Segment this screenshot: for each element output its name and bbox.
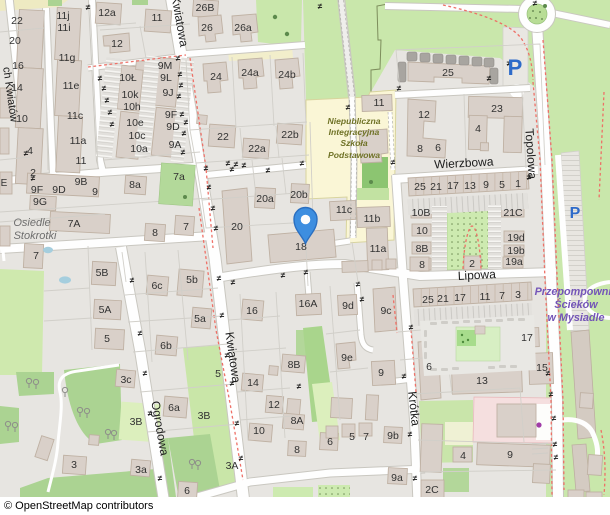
svg-text:9: 9 — [483, 179, 489, 191]
svg-text:9F: 9F — [31, 184, 43, 196]
svg-text:20b: 20b — [290, 189, 308, 201]
svg-text:6b: 6b — [160, 340, 172, 352]
svg-text:16: 16 — [12, 60, 24, 72]
svg-text:11c: 11c — [67, 110, 83, 122]
svg-text:≠: ≠ — [179, 81, 184, 90]
svg-text:10h: 10h — [123, 101, 141, 113]
svg-text:≠: ≠ — [553, 440, 558, 449]
svg-text:≠: ≠ — [226, 159, 231, 168]
svg-text:14: 14 — [11, 82, 23, 94]
svg-text:Niepubliczna: Niepubliczna — [327, 116, 380, 126]
svg-text:≠: ≠ — [391, 158, 396, 167]
svg-text:22b: 22b — [281, 129, 299, 141]
svg-text:Stokrotki: Stokrotki — [14, 230, 57, 242]
svg-text:10k: 10k — [122, 89, 140, 101]
svg-text:4: 4 — [27, 145, 33, 157]
svg-text:≠: ≠ — [143, 369, 148, 378]
svg-text:8: 8 — [294, 444, 300, 456]
svg-text:9D: 9D — [52, 184, 66, 196]
svg-text:3B: 3B — [130, 416, 143, 428]
svg-text:10e: 10e — [126, 117, 144, 129]
svg-text:7: 7 — [499, 290, 505, 302]
svg-text:Szkoła: Szkoła — [340, 138, 367, 148]
svg-text:10B: 10B — [412, 207, 431, 219]
svg-text:9: 9 — [92, 186, 98, 198]
svg-text:≠: ≠ — [549, 390, 554, 399]
svg-text:9J: 9J — [162, 87, 173, 99]
svg-text:E: E — [1, 178, 8, 189]
svg-text:10: 10 — [16, 113, 28, 125]
svg-text:20: 20 — [231, 221, 243, 233]
svg-text:≠: ≠ — [176, 54, 181, 63]
svg-text:9d: 9d — [342, 300, 354, 312]
svg-text:11e: 11e — [63, 80, 80, 92]
svg-text:9F: 9F — [165, 109, 177, 121]
svg-text:11: 11 — [76, 155, 87, 167]
svg-text:13: 13 — [464, 180, 476, 192]
svg-text:3: 3 — [71, 459, 77, 471]
svg-text:10c: 10c — [129, 130, 146, 142]
svg-text:≠: ≠ — [220, 311, 225, 320]
svg-text:17: 17 — [447, 180, 459, 192]
svg-text:10a: 10a — [130, 143, 148, 155]
svg-text:11g: 11g — [59, 52, 76, 64]
svg-text:9a: 9a — [391, 472, 403, 484]
svg-text:≠: ≠ — [181, 148, 186, 157]
svg-text:≠: ≠ — [397, 84, 402, 93]
svg-text:5: 5 — [349, 431, 355, 443]
svg-text:≠: ≠ — [178, 70, 183, 79]
svg-text:w Mysiadle: w Mysiadle — [547, 312, 604, 324]
svg-text:12a: 12a — [98, 7, 116, 19]
svg-text:≠: ≠ — [487, 74, 492, 83]
svg-text:≠: ≠ — [266, 166, 271, 175]
svg-text:≠: ≠ — [86, 3, 91, 12]
svg-text:11a: 11a — [70, 135, 87, 147]
svg-text:≠: ≠ — [242, 161, 247, 170]
svg-text:25: 25 — [422, 294, 434, 306]
svg-text:≠: ≠ — [207, 183, 212, 192]
svg-text:6c: 6c — [151, 280, 162, 292]
svg-text:6: 6 — [435, 142, 441, 154]
svg-text:9B: 9B — [75, 176, 88, 188]
svg-text:5: 5 — [215, 368, 221, 380]
svg-text:11a: 11a — [370, 243, 387, 255]
svg-text:17: 17 — [454, 292, 466, 304]
svg-text:Ścieków: Ścieków — [554, 298, 598, 311]
svg-text:7A: 7A — [68, 218, 81, 230]
svg-text:≠: ≠ — [533, 0, 538, 8]
svg-text:≠: ≠ — [182, 129, 187, 138]
svg-text:16: 16 — [246, 305, 258, 317]
svg-text:≠: ≠ — [177, 92, 182, 101]
svg-text:≠: ≠ — [214, 224, 219, 233]
svg-text:≠: ≠ — [552, 414, 557, 423]
svg-text:© OpenStreetMap contributors: © OpenStreetMap contributors — [4, 500, 154, 512]
svg-text:≠: ≠ — [281, 271, 286, 280]
svg-text:4: 4 — [460, 450, 466, 462]
svg-text:3c: 3c — [120, 374, 131, 386]
svg-text:9c: 9c — [380, 305, 391, 317]
svg-text:9L: 9L — [160, 72, 172, 84]
svg-text:7: 7 — [183, 221, 189, 233]
svg-text:3B: 3B — [198, 410, 211, 422]
svg-text:≠: ≠ — [360, 295, 365, 304]
svg-text:3: 3 — [515, 289, 521, 301]
svg-text:5b: 5b — [186, 274, 198, 286]
svg-text:7a: 7a — [173, 171, 185, 183]
svg-text:11b: 11b — [364, 213, 381, 225]
svg-text:≠: ≠ — [356, 280, 361, 289]
svg-text:21: 21 — [430, 181, 442, 193]
svg-text:5: 5 — [104, 333, 110, 345]
svg-text:5B: 5B — [96, 267, 109, 279]
svg-text:16A: 16A — [299, 298, 318, 310]
svg-text:9G: 9G — [33, 196, 47, 208]
svg-text:25: 25 — [442, 67, 454, 79]
svg-text:≠: ≠ — [408, 430, 413, 439]
svg-text:8B: 8B — [288, 359, 301, 371]
svg-text:≠: ≠ — [98, 74, 103, 83]
svg-text:≠: ≠ — [235, 419, 240, 428]
svg-text:Podstawowa: Podstawowa — [328, 150, 380, 160]
svg-text:24a: 24a — [241, 67, 259, 79]
svg-text:6: 6 — [327, 436, 333, 448]
svg-text:5: 5 — [499, 179, 505, 191]
svg-text:12: 12 — [418, 109, 430, 121]
svg-text:17: 17 — [521, 332, 533, 344]
svg-text:≠: ≠ — [217, 274, 222, 283]
svg-text:23: 23 — [491, 103, 503, 115]
svg-text:20a: 20a — [256, 193, 274, 205]
svg-text:11: 11 — [152, 12, 163, 24]
svg-text:9b: 9b — [387, 430, 399, 442]
svg-text:≠: ≠ — [413, 474, 418, 483]
svg-text:P: P — [570, 205, 581, 222]
svg-text:21C: 21C — [503, 207, 523, 219]
svg-text:13: 13 — [476, 375, 488, 387]
svg-text:19a: 19a — [505, 256, 523, 268]
svg-text:2: 2 — [469, 258, 475, 270]
svg-text:≠: ≠ — [110, 120, 115, 129]
svg-text:6: 6 — [184, 485, 190, 497]
svg-text:2C: 2C — [425, 484, 439, 496]
svg-text:5A: 5A — [99, 304, 112, 316]
svg-text:≠: ≠ — [102, 84, 107, 93]
svg-text:9M: 9M — [158, 60, 173, 72]
svg-text:22: 22 — [11, 15, 23, 27]
svg-text:≠: ≠ — [346, 103, 351, 112]
svg-text:12: 12 — [111, 38, 123, 50]
svg-text:6: 6 — [426, 361, 432, 373]
svg-text:26a: 26a — [234, 22, 252, 34]
svg-text:≠: ≠ — [130, 276, 135, 285]
svg-text:5a: 5a — [194, 313, 206, 325]
svg-text:P: P — [508, 55, 523, 80]
svg-text:2: 2 — [30, 167, 36, 179]
svg-text:11: 11 — [374, 97, 385, 109]
svg-text:≠: ≠ — [108, 108, 113, 117]
svg-text:25: 25 — [414, 181, 426, 193]
svg-text:3a: 3a — [135, 464, 147, 476]
svg-text:≠: ≠ — [304, 268, 309, 277]
svg-text:24: 24 — [210, 71, 222, 83]
svg-text:≠: ≠ — [554, 453, 559, 462]
svg-text:7: 7 — [363, 431, 369, 443]
svg-text:Osiedle: Osiedle — [13, 217, 50, 229]
svg-text:12: 12 — [268, 399, 280, 411]
svg-text:8: 8 — [419, 259, 425, 271]
svg-text:11c: 11c — [336, 204, 352, 216]
svg-text:1: 1 — [515, 178, 521, 190]
svg-text:≠: ≠ — [204, 164, 209, 173]
svg-text:≠: ≠ — [158, 474, 163, 483]
svg-text:11i: 11i — [57, 22, 70, 34]
svg-text:Przepompownia: Przepompownia — [535, 286, 610, 298]
svg-text:15: 15 — [536, 362, 548, 374]
svg-text:≠: ≠ — [105, 96, 110, 105]
svg-text:7: 7 — [33, 250, 39, 262]
svg-text:9: 9 — [507, 449, 513, 461]
svg-text:≠: ≠ — [402, 372, 407, 381]
svg-text:8: 8 — [152, 227, 158, 239]
svg-text:22: 22 — [217, 131, 229, 143]
svg-text:8B: 8B — [416, 243, 429, 255]
svg-text:3A: 3A — [226, 460, 239, 472]
svg-text:10: 10 — [416, 225, 428, 237]
svg-text:21: 21 — [437, 293, 449, 305]
svg-text:26: 26 — [201, 22, 213, 34]
svg-text:8A: 8A — [291, 415, 304, 427]
svg-text:6a: 6a — [168, 402, 180, 414]
svg-text:9e: 9e — [341, 352, 353, 364]
svg-text:≠: ≠ — [409, 323, 414, 332]
svg-text:≠: ≠ — [138, 329, 143, 338]
svg-text:22a: 22a — [248, 143, 266, 155]
svg-text:≠: ≠ — [318, 2, 323, 11]
svg-text:10: 10 — [253, 425, 265, 437]
svg-text:≠: ≠ — [184, 118, 189, 127]
svg-text:≠: ≠ — [231, 278, 236, 287]
svg-text:9A: 9A — [169, 139, 182, 151]
svg-text:≠: ≠ — [234, 160, 239, 169]
svg-text:4: 4 — [475, 123, 481, 135]
svg-text:≠: ≠ — [239, 454, 244, 463]
svg-text:20: 20 — [9, 35, 21, 47]
svg-text:≠: ≠ — [297, 382, 302, 391]
svg-text:26B: 26B — [196, 2, 215, 14]
svg-text:Integracyjna: Integracyjna — [329, 127, 380, 137]
svg-text:24b: 24b — [278, 69, 296, 81]
svg-text:11: 11 — [480, 291, 491, 303]
svg-text:10Ł: 10Ł — [119, 72, 137, 84]
svg-text:8: 8 — [417, 143, 423, 155]
svg-text:8a: 8a — [129, 179, 141, 191]
svg-text:≠: ≠ — [211, 204, 216, 213]
svg-text:14: 14 — [247, 377, 259, 389]
svg-text:11j: 11j — [56, 10, 69, 22]
svg-text:9D: 9D — [166, 121, 180, 133]
svg-text:19d: 19d — [507, 232, 525, 244]
svg-text:9: 9 — [378, 367, 384, 379]
svg-text:Lipowa: Lipowa — [457, 267, 496, 283]
svg-text:≠: ≠ — [300, 159, 305, 168]
